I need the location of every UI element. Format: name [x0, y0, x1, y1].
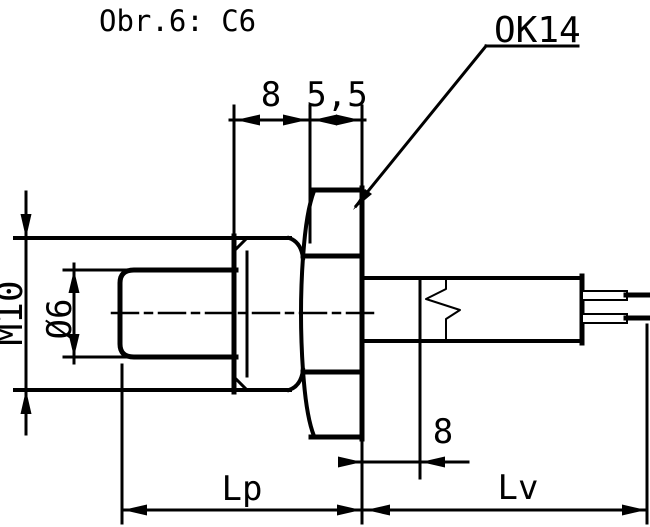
- callout-leader-line: [356, 46, 486, 206]
- drawing-title: Obr.6: C6: [99, 4, 256, 38]
- arrowhead-m10-bottom: [21, 390, 32, 414]
- dim-label-lead-length: Lv: [498, 468, 539, 508]
- arrowhead-lv-right: [622, 505, 646, 516]
- arrowhead-top8-left: [236, 115, 260, 126]
- dim-label-sleeve-length: 8: [433, 412, 453, 452]
- extension-lines: [64, 106, 647, 523]
- arrowhead-dia6-top: [69, 270, 80, 293]
- probe-part-outline: [15, 188, 649, 478]
- dim-label-tip-diameter: Ø6: [40, 299, 80, 340]
- dim-label-process-length: Lp: [222, 469, 263, 509]
- arrowhead-m10-top: [21, 214, 32, 238]
- arrowhead-top8-right: [283, 115, 307, 126]
- arrowhead-lp-left: [123, 505, 147, 516]
- hex-face-lower-left: [303, 370, 314, 436]
- dim-label-thread-length: 8: [261, 75, 281, 115]
- dimension-arrowheads: [21, 115, 647, 516]
- drawing-canvas: Obr.6: C6 OK14 8 5,5 M10 Ø6 8 Lp Lv: [0, 0, 650, 527]
- arrowhead-55-left: [313, 115, 337, 126]
- arrowhead-lp-right: [337, 505, 361, 516]
- arrowhead-lv-left: [366, 505, 390, 516]
- arrowhead-sleeve8-right: [421, 457, 445, 468]
- break-symbol: [426, 280, 460, 341]
- drawing-labels: Obr.6: C6 OK14 8 5,5 M10 Ø6 8 Lp Lv: [0, 4, 581, 509]
- arrowhead-sleeve8-left: [338, 457, 362, 468]
- hex-callout-label: OK14: [494, 10, 581, 51]
- lead-wire-bottom: [582, 314, 627, 323]
- arrowhead-55-right: [336, 115, 360, 126]
- dim-label-hex-thickness: 5,5: [306, 75, 367, 115]
- lead-wire-top: [582, 291, 627, 300]
- technical-drawing: Obr.6: C6 OK14 8 5,5 M10 Ø6 8 Lp Lv: [0, 0, 650, 527]
- dim-label-thread-size: M10: [0, 280, 31, 345]
